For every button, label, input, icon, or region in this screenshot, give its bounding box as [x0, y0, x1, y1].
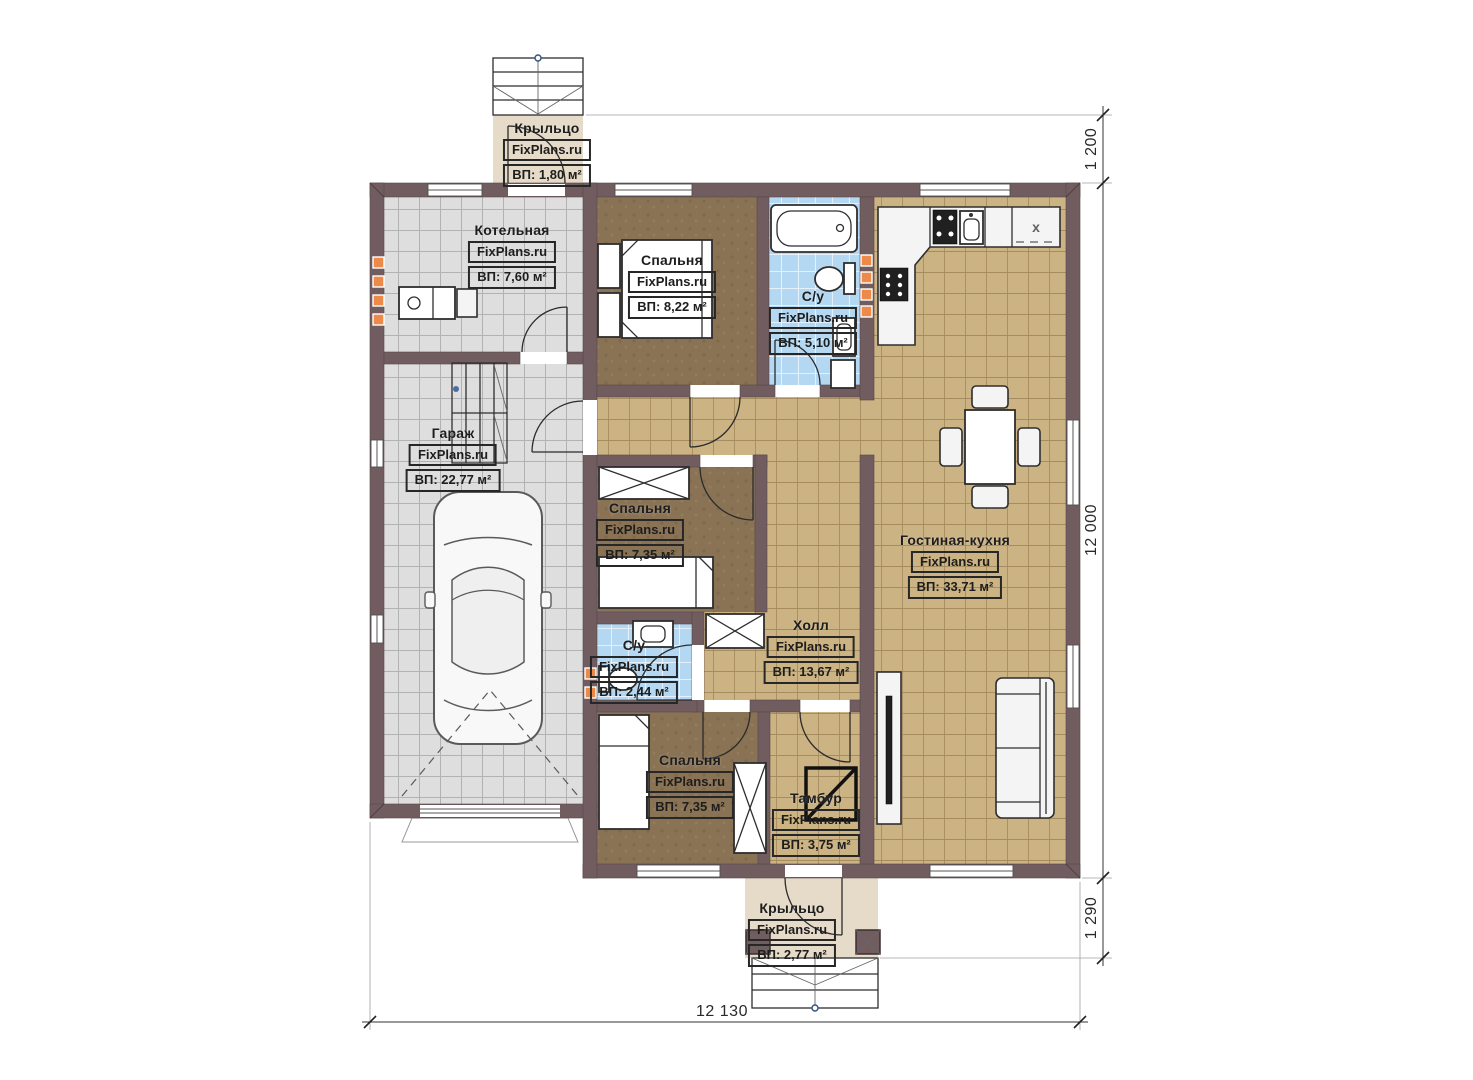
room-name: Спальня [609, 500, 671, 516]
garage-car [425, 492, 551, 744]
stove [933, 210, 957, 244]
room-brand: FixPlans.ru [628, 271, 716, 293]
wall-700-c [850, 700, 860, 712]
room-brand: FixPlans.ru [596, 519, 684, 541]
chair [1018, 428, 1040, 466]
porch-top-stairs [493, 55, 583, 115]
bath2-door-opening [692, 645, 704, 700]
room-brand: FixPlans.ru [767, 636, 855, 658]
room-area: ВП: 2,44 м² [590, 681, 678, 703]
window-bedroom1-top [615, 184, 692, 196]
room-label-bedroom3: Спальня FixPlans.ru ВП: 7,35 м² [646, 752, 734, 819]
dimension-right-side: 12 000 [1083, 504, 1101, 556]
dimension-bottom: 12 130 [696, 1003, 748, 1021]
floor-plan-canvas: x [0, 0, 1473, 1080]
wardrobe [599, 467, 689, 499]
wall-bedroom2-top-a [597, 455, 700, 467]
room-label-bedroom2: Спальня FixPlans.ru ВП: 7,35 м² [596, 500, 684, 567]
room-name: Спальня [641, 252, 703, 268]
sofa [996, 678, 1054, 818]
kitchen-sink [960, 211, 983, 244]
wall-spine [583, 183, 597, 878]
room-area: ВП: 7,60 м² [468, 266, 556, 288]
chair [972, 486, 1008, 508]
room-label-garage: Гараж FixPlans.ru ВП: 22,77 м² [406, 425, 501, 492]
room-area: ВП: 7,35 м² [596, 544, 684, 566]
car-mirror-left [425, 592, 435, 608]
garage-apron [402, 818, 578, 842]
room-name: С/у [623, 637, 645, 653]
wall-boiler-garage-b [567, 352, 583, 364]
room-area: ВП: 33,71 м² [908, 576, 1003, 598]
room-brand: FixPlans.ru [911, 551, 999, 573]
hob-left [880, 268, 908, 301]
room-brand: FixPlans.ru [503, 139, 591, 161]
wall-700-b [750, 700, 800, 712]
floor-plan-drawing: x [0, 0, 1473, 1080]
room-name: Спальня [659, 752, 721, 768]
room-area: ВП: 2,77 м² [748, 944, 836, 966]
room-brand: FixPlans.ru [409, 444, 497, 466]
chair [940, 428, 962, 466]
room-label-porch-top: Крыльцо FixPlans.ru ВП: 1,80 м² [503, 120, 591, 187]
window-boiler-top [428, 184, 482, 196]
wall-right [1066, 183, 1080, 878]
room-name: Крыльцо [514, 120, 579, 136]
wall-bedroom2-right [755, 455, 767, 612]
room-name: Крыльцо [759, 900, 824, 916]
room-label-boiler: Котельная FixPlans.ru ВП: 7,60 м² [468, 222, 556, 289]
room-label-vestibule: Тамбур FixPlans.ru ВП: 3,75 м² [772, 790, 860, 857]
window-right-sofa [1067, 645, 1079, 708]
room-name: Тамбур [790, 790, 842, 806]
room-label-living-kitchen: Гостиная-кухня FixPlans.ru ВП: 33,71 м² [900, 532, 1010, 599]
room-brand: FixPlans.ru [769, 307, 857, 329]
wall-living-left-bottom [860, 455, 874, 864]
wall-bath1-left [757, 197, 769, 385]
room-brand: FixPlans.ru [748, 919, 836, 941]
window-right-dining [1067, 420, 1079, 505]
room-name: Гостиная-кухня [900, 532, 1010, 548]
window-bedroom3-bottom [637, 865, 720, 877]
room-label-bath1: С/у FixPlans.ru ВП: 5,10 м² [769, 288, 857, 355]
boiler-unit [399, 287, 477, 319]
room-area: ВП: 7,35 м² [646, 796, 734, 818]
room-label-porch-bottom: Крыльцо FixPlans.ru ВП: 2,77 м² [748, 900, 836, 967]
tv [886, 696, 892, 804]
window-kitchen-top [920, 184, 1010, 196]
window-garage-left-2 [371, 615, 383, 643]
room-name: Холл [793, 617, 829, 633]
car-mirror-right [541, 592, 551, 608]
tv-stand [877, 672, 901, 824]
dimension-bottom-right: 1 290 [1083, 897, 1101, 940]
wall-boiler-garage-a [384, 352, 520, 364]
room-label-bedroom1: Спальня FixPlans.ru ВП: 8,22 м² [628, 252, 716, 319]
dining-table [965, 410, 1015, 484]
nightstand [598, 244, 620, 288]
garage-hall-opening [583, 400, 597, 455]
room-name: С/у [802, 288, 824, 304]
room-area: ВП: 22,77 м² [406, 469, 501, 491]
room-brand: FixPlans.ru [468, 241, 556, 263]
bathtub [771, 205, 857, 252]
entry-bottom-opening [785, 865, 842, 877]
room-label-bath2: С/у FixPlans.ru ВП: 2,44 м² [590, 637, 678, 704]
garage-gate-opening [420, 805, 560, 817]
room-area: ВП: 1,80 м² [503, 164, 591, 186]
wardrobe [734, 763, 766, 853]
room-label-hall: Холл FixPlans.ru ВП: 13,67 м² [764, 617, 859, 684]
room-area: ВП: 5,10 м² [769, 332, 857, 354]
room-area: ВП: 13,67 м² [764, 661, 859, 683]
room-area: ВП: 3,75 м² [772, 834, 860, 856]
hall-upper-floor [597, 397, 860, 455]
room-brand: FixPlans.ru [646, 771, 734, 793]
nightstand [598, 293, 620, 337]
window-living-bottom [930, 865, 1013, 877]
washing-machine [831, 360, 855, 388]
dimension-top-right: 1 200 [1083, 128, 1101, 171]
wall-strip1-a [597, 385, 690, 397]
fridge-mark: x [1032, 219, 1040, 235]
room-brand: FixPlans.ru [590, 656, 678, 678]
wall-strip1-b [740, 385, 775, 397]
hall-closet [706, 614, 764, 648]
chair [972, 386, 1008, 408]
single-bed [599, 715, 649, 829]
room-brand: FixPlans.ru [772, 809, 860, 831]
room-name: Котельная [474, 222, 549, 238]
hall-living-opening-floor [860, 400, 874, 455]
room-area: ВП: 8,22 м² [628, 296, 716, 318]
window-garage-left-1 [371, 440, 383, 467]
room-name: Гараж [432, 425, 475, 441]
